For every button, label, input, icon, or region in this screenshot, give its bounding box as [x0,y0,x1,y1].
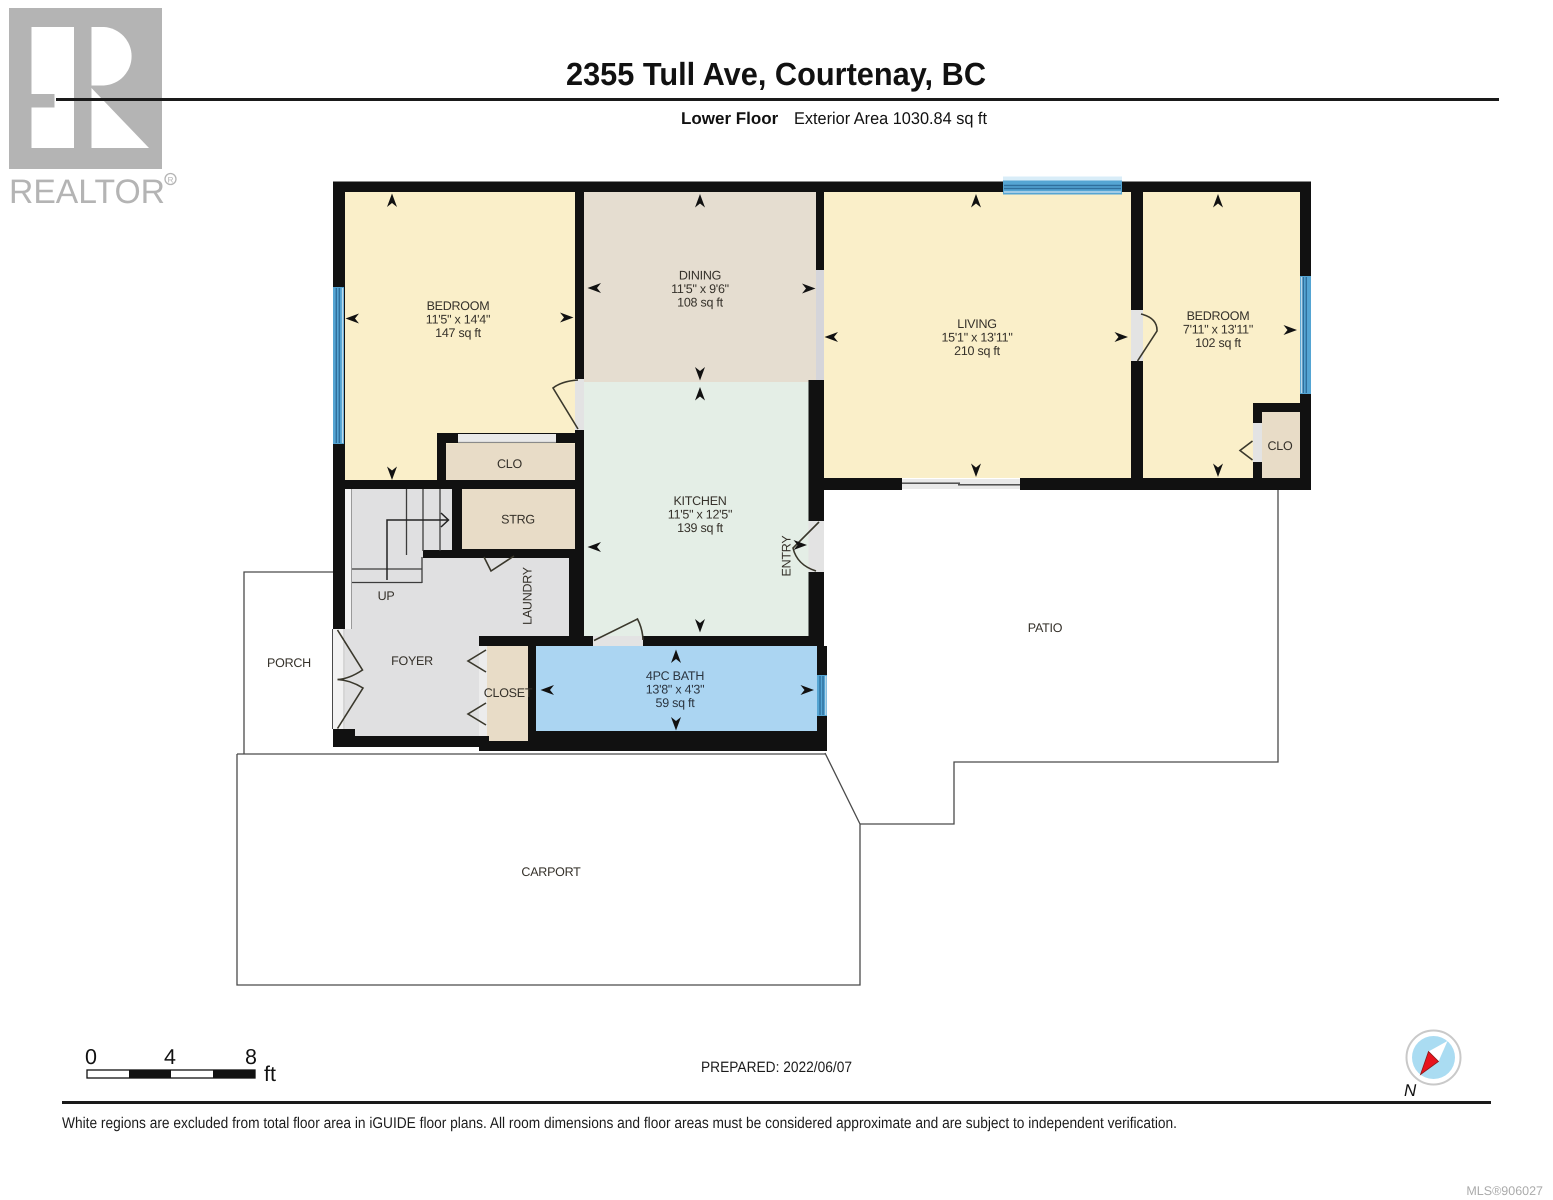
svg-text:8: 8 [245,1045,257,1069]
svg-text:0: 0 [85,1045,97,1069]
svg-text:147 sq ft: 147 sq ft [435,326,481,340]
svg-text:BEDROOM: BEDROOM [427,299,490,313]
svg-text:CLOSET: CLOSET [484,686,533,700]
svg-text:MLS®906027: MLS®906027 [1466,1184,1543,1198]
svg-text:11'5" x 12'5": 11'5" x 12'5" [668,508,732,522]
svg-text:Exterior Area 1030.84 sq ft: Exterior Area 1030.84 sq ft [794,109,987,128]
svg-text:PATIO: PATIO [1028,621,1063,635]
svg-text:15'1" x 13'11": 15'1" x 13'11" [941,331,1012,345]
svg-text:210 sq ft: 210 sq ft [954,344,1000,358]
svg-text:REALTOR: REALTOR [9,173,165,211]
svg-text:11'5" x 14'4": 11'5" x 14'4" [426,313,490,327]
svg-text:BEDROOM: BEDROOM [1187,309,1250,323]
svg-text:13'8" x 4'3": 13'8" x 4'3" [646,683,705,697]
svg-text:7'11" x 13'11": 7'11" x 13'11" [1183,323,1253,337]
svg-text:UP: UP [378,589,395,603]
svg-text:PREPARED: 2022/06/07: PREPARED: 2022/06/07 [701,1059,852,1076]
svg-text:2355 Tull Ave, Courtenay, BC: 2355 Tull Ave, Courtenay, BC [566,56,986,92]
svg-text:102 sq ft: 102 sq ft [1195,336,1241,350]
svg-text:108 sq ft: 108 sq ft [677,296,723,310]
svg-text:59 sq ft: 59 sq ft [656,696,696,710]
svg-text:139 sq ft: 139 sq ft [677,521,723,535]
svg-text:DINING: DINING [679,269,721,283]
svg-text:CARPORT: CARPORT [521,865,581,879]
svg-text:R: R [168,176,174,185]
svg-text:ENTRY: ENTRY [780,535,794,577]
svg-text:4: 4 [164,1045,176,1069]
svg-text:Lower Floor: Lower Floor [681,109,779,128]
svg-text:PORCH: PORCH [267,656,311,670]
svg-text:STRG: STRG [501,513,535,527]
svg-text:4PC BATH: 4PC BATH [646,669,704,683]
svg-text:FOYER: FOYER [391,654,433,668]
svg-text:ft: ft [264,1062,276,1086]
svg-text:KITCHEN: KITCHEN [673,494,726,508]
svg-text:CLO: CLO [1268,439,1293,453]
svg-text:LAUNDRY: LAUNDRY [521,566,535,625]
svg-text:N: N [1404,1081,1417,1100]
svg-text:CLO: CLO [497,457,522,471]
svg-text:11'5" x 9'6": 11'5" x 9'6" [671,282,729,296]
svg-text:White regions are excluded fro: White regions are excluded from total fl… [62,1115,1177,1132]
svg-text:LIVING: LIVING [957,317,997,331]
